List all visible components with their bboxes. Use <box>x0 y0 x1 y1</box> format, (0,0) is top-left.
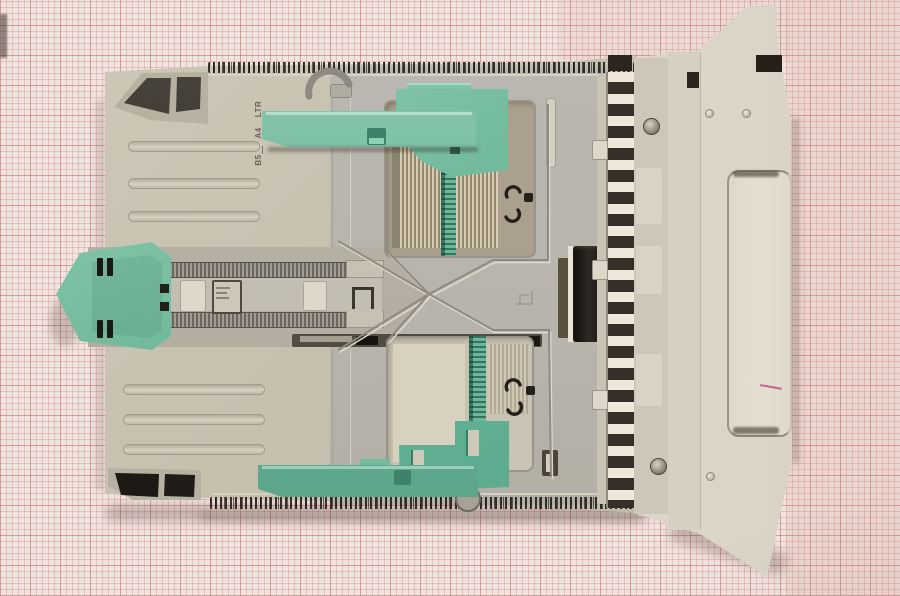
recess-smudge <box>733 171 779 177</box>
comb-tab <box>592 390 608 410</box>
front-handle-recess <box>727 170 792 437</box>
pin-dot <box>705 109 714 118</box>
unlock-arrows-lower <box>506 380 535 414</box>
embossed-corner-glyph <box>516 291 532 304</box>
comb-tab <box>592 260 608 280</box>
bezel-hole <box>608 55 632 71</box>
ridge-shadow <box>338 104 551 477</box>
comb-tab <box>592 140 608 160</box>
screw <box>650 458 667 475</box>
unlock-arrows-upper <box>506 187 533 221</box>
pin-dot <box>706 472 715 481</box>
rail-window-text-lines <box>216 288 230 298</box>
photo-printer-paper-tray: LTR A4 B5 <box>0 0 900 596</box>
screw <box>643 118 660 135</box>
bezel-light-square <box>636 246 662 294</box>
bezel-hole <box>756 55 782 72</box>
comb-side-strip <box>597 74 606 504</box>
recess-smudge <box>733 427 779 434</box>
ridge-highlight <box>340 107 553 480</box>
bezel-hole <box>687 72 699 88</box>
metal-hook-arc <box>309 71 349 96</box>
comb-teeth-strip <box>606 72 634 508</box>
pin-dot <box>742 109 751 118</box>
bezel-light-square <box>636 354 662 406</box>
bezel-mid-column <box>668 52 701 530</box>
bezel-light-square <box>636 168 662 224</box>
